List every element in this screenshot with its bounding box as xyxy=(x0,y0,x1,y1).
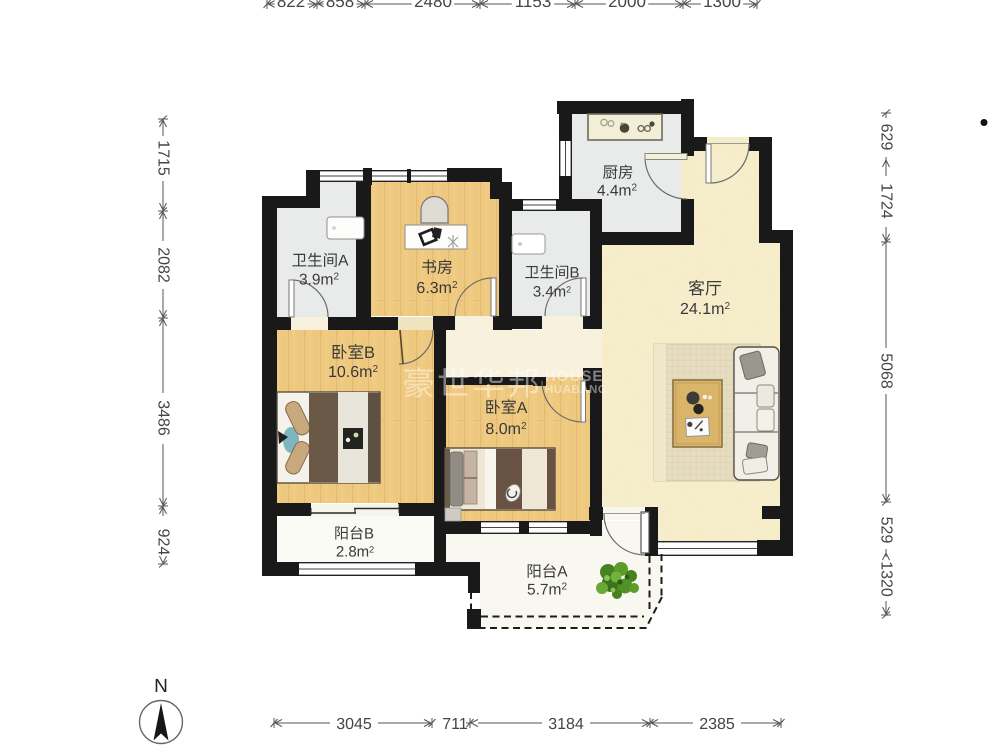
svg-text:N: N xyxy=(154,676,168,697)
svg-text:858: 858 xyxy=(326,0,354,11)
svg-text:A: A xyxy=(338,253,349,270)
svg-text:629: 629 xyxy=(878,124,895,151)
svg-text:B: B xyxy=(570,265,580,282)
svg-text:3.4m2: 3.4m2 xyxy=(533,283,571,300)
svg-text:5068: 5068 xyxy=(878,353,895,389)
svg-text:1320: 1320 xyxy=(878,561,895,597)
svg-text:2385: 2385 xyxy=(699,716,735,733)
svg-text:529: 529 xyxy=(878,517,895,544)
svg-text:B: B xyxy=(364,526,374,543)
svg-text:10.6m2: 10.6m2 xyxy=(328,364,378,381)
svg-text:2082: 2082 xyxy=(155,247,172,283)
svg-text:6.3m2: 6.3m2 xyxy=(416,280,458,297)
svg-text:924: 924 xyxy=(155,529,172,556)
svg-text:3184: 3184 xyxy=(548,716,584,733)
svg-text:2.8m2: 2.8m2 xyxy=(336,543,374,560)
svg-text:822: 822 xyxy=(277,0,305,11)
svg-text:1153: 1153 xyxy=(515,0,552,11)
svg-text:B: B xyxy=(364,344,375,362)
svg-text:5.7m2: 5.7m2 xyxy=(527,582,567,599)
svg-text:24.1m2: 24.1m2 xyxy=(680,301,730,318)
svg-text:A: A xyxy=(557,564,568,581)
svg-text:4.4m2: 4.4m2 xyxy=(597,183,637,200)
svg-text:1724: 1724 xyxy=(878,183,895,219)
svg-text:8.0m2: 8.0m2 xyxy=(485,421,527,438)
svg-text:2480: 2480 xyxy=(414,0,452,11)
svg-text:3486: 3486 xyxy=(155,400,172,436)
svg-text:1715: 1715 xyxy=(155,140,172,176)
svg-text:2000: 2000 xyxy=(608,0,646,11)
svg-text:HOUSE: HOUSE xyxy=(545,368,603,385)
svg-text:3045: 3045 xyxy=(336,716,372,733)
svg-text:3.9m2: 3.9m2 xyxy=(299,272,339,289)
svg-text:A: A xyxy=(517,400,528,417)
svg-text:1300: 1300 xyxy=(703,0,741,11)
svg-text:HUABANG: HUABANG xyxy=(545,384,607,396)
svg-text:711: 711 xyxy=(442,716,468,733)
